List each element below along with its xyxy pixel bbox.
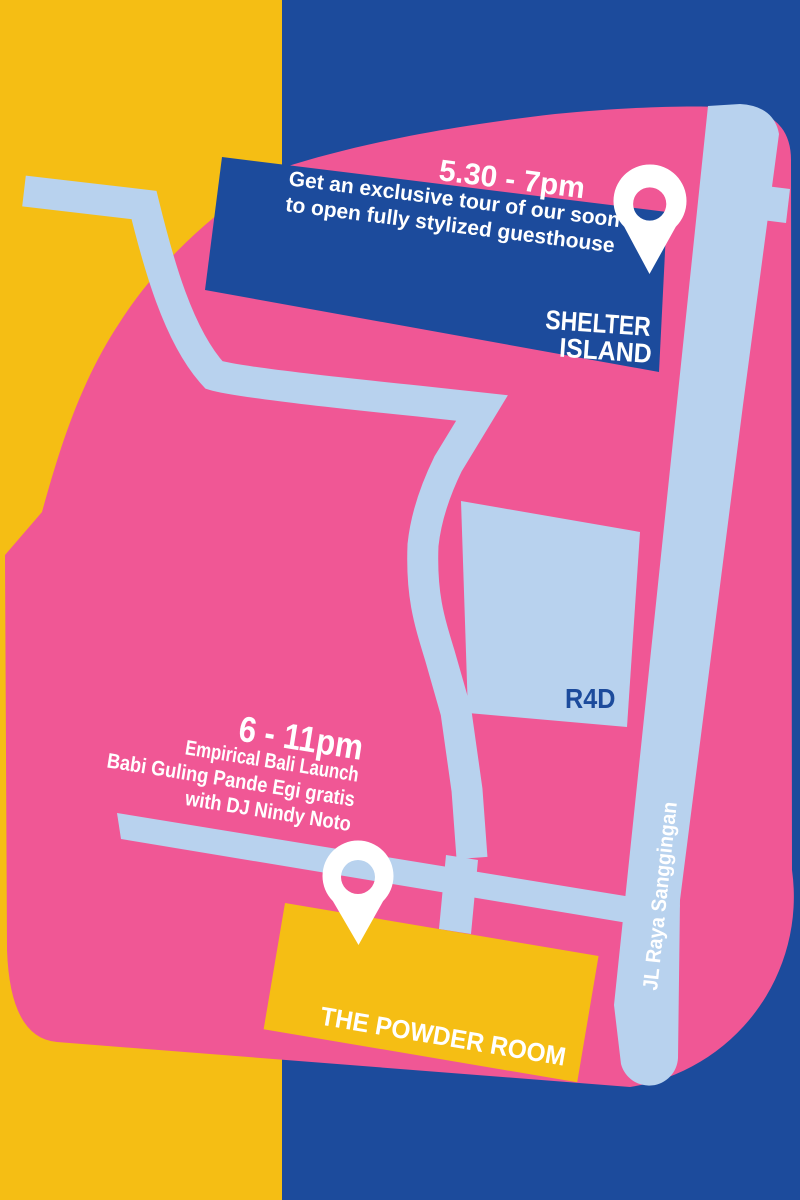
svg-text:R4D: R4D bbox=[565, 683, 615, 715]
